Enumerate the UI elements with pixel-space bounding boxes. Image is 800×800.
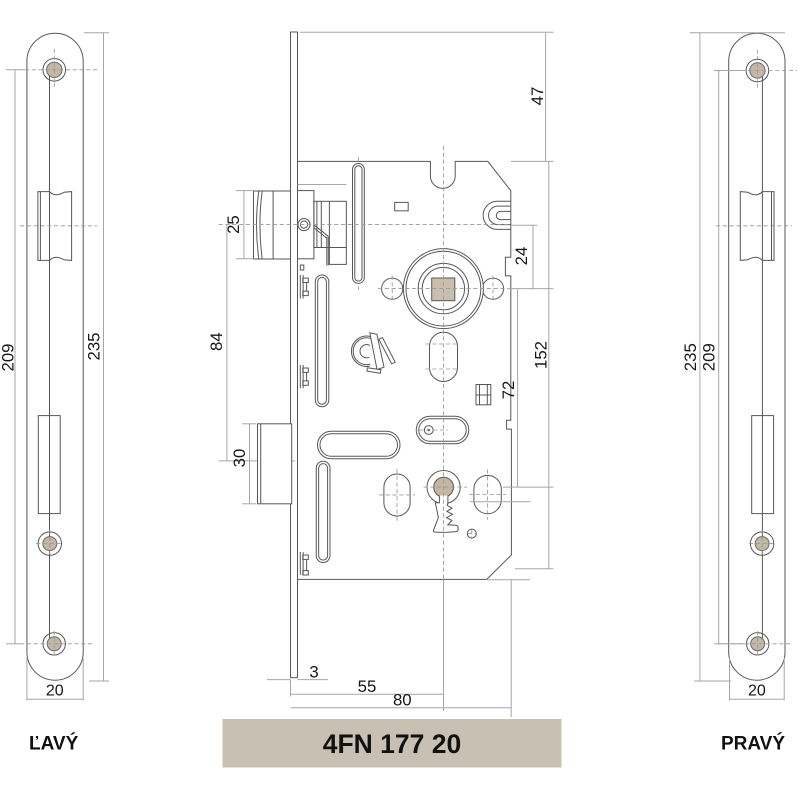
svg-text:30: 30 [230, 449, 249, 468]
svg-text:80: 80 [393, 691, 412, 710]
svg-text:47: 47 [528, 87, 547, 106]
svg-text:24: 24 [512, 247, 531, 266]
svg-text:235: 235 [85, 333, 104, 361]
svg-text:4FN 177 20: 4FN 177 20 [323, 729, 461, 759]
svg-text:20: 20 [46, 683, 64, 700]
svg-text:84: 84 [207, 332, 226, 351]
svg-text:20: 20 [748, 683, 766, 700]
svg-text:PRAVÝ: PRAVÝ [721, 733, 785, 755]
svg-text:72: 72 [499, 381, 518, 400]
svg-text:ĽAVÝ: ĽAVÝ [29, 733, 79, 755]
svg-text:209: 209 [0, 344, 18, 372]
svg-text:152: 152 [532, 341, 551, 369]
svg-text:235: 235 [681, 343, 700, 371]
svg-text:209: 209 [699, 343, 718, 371]
svg-text:3: 3 [309, 663, 318, 682]
svg-text:55: 55 [358, 677, 377, 696]
